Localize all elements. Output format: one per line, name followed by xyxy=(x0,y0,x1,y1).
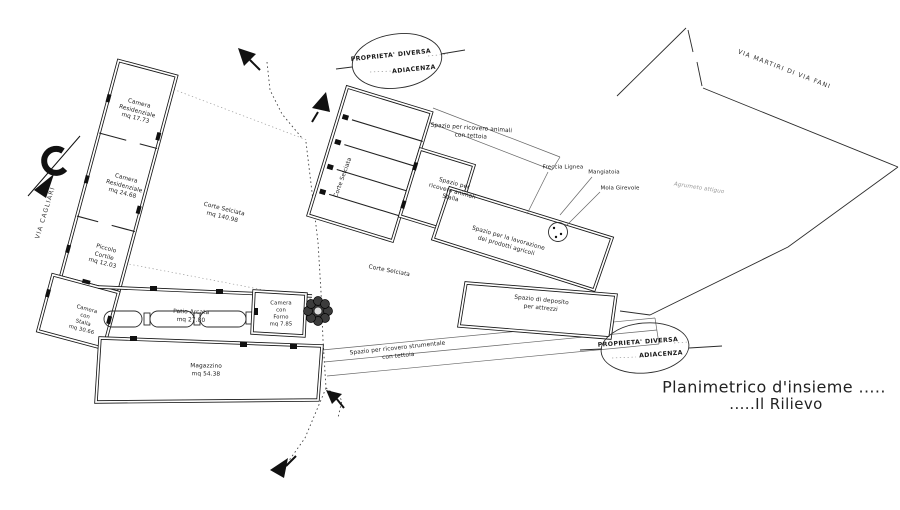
room-label-patio-arcata: Patio Arcata mq 27.80 xyxy=(173,309,210,325)
drawing-title: Planimetrico d'insieme ..... xyxy=(662,378,886,397)
boundary-arrow-icon xyxy=(238,48,260,70)
callout-mangiatoia: Mangiatoia xyxy=(588,169,619,176)
room-label-camera-con-forno: Camera con Forno mq 7.85 xyxy=(270,300,293,328)
room-label-magazzino: Magazzino mq 54.38 xyxy=(190,363,222,379)
callout-freccia-lignea: Freccia Lignea xyxy=(543,164,584,171)
callout-mola-girevole: Mola Girevole xyxy=(601,185,640,192)
street-boundary xyxy=(617,28,898,315)
left-residential-wing xyxy=(36,58,177,349)
drawing-subtitle: .....Il Rilievo xyxy=(729,395,822,413)
plan-linework xyxy=(0,0,900,510)
tree-icon xyxy=(304,297,333,326)
floor-plan: Camera Residenziale mq 17.73 Camera Resi… xyxy=(0,0,900,510)
boundary-arrow-icon xyxy=(270,456,296,478)
survey-line xyxy=(170,88,307,140)
boundary-arrow-icon xyxy=(312,92,330,122)
